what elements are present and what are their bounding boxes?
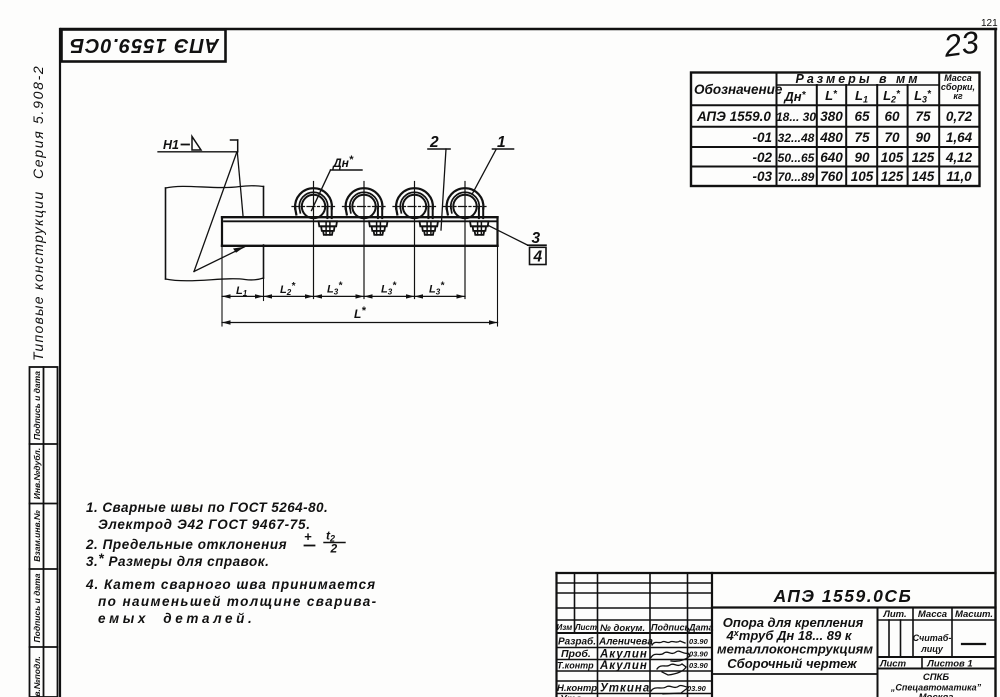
- svg-text:емых деталей.: емых деталей.: [98, 611, 255, 626]
- svg-text:145: 145: [912, 169, 935, 184]
- svg-text:Изм: Изм: [557, 623, 573, 632]
- svg-text:Лист: Лист: [574, 623, 597, 632]
- svg-text:640: 640: [820, 150, 843, 165]
- svg-text:125: 125: [912, 150, 935, 165]
- svg-text:1. Сварные швы по ГОСТ 5264: 1. Сварные швы по ГОСТ 5264-80.: [86, 500, 328, 515]
- svg-text:Листов 1: Листов 1: [926, 659, 972, 670]
- svg-text:Размеры в мм: Размеры в мм: [795, 72, 920, 86]
- svg-text:03.90: 03.90: [689, 650, 709, 659]
- svg-text:Разраб.: Разраб.: [558, 636, 596, 648]
- svg-text:Инв.№подл.: Инв.№подл.: [32, 656, 42, 697]
- svg-text:по наименьшей толщине свари: по наименьшей толщине сварива-: [98, 594, 378, 609]
- svg-text:L*: L*: [354, 305, 366, 321]
- svg-text:Н.контр: Н.контр: [557, 683, 597, 694]
- svg-text:4: 4: [533, 249, 543, 266]
- svg-text:03.90: 03.90: [689, 637, 709, 646]
- svg-text:Масса: Масса: [918, 609, 947, 620]
- svg-text:760: 760: [820, 169, 843, 184]
- svg-text:75: 75: [854, 130, 870, 145]
- svg-text:65: 65: [854, 109, 870, 124]
- svg-text:Лит.: Лит.: [882, 609, 906, 620]
- svg-text:90: 90: [854, 150, 870, 165]
- svg-text:АПЭ 1559.0СБ: АПЭ 1559.0СБ: [773, 586, 913, 606]
- svg-text:металлоконструкциям: металлоконструкциям: [717, 642, 873, 657]
- svg-text:Т.контр: Т.контр: [557, 661, 594, 671]
- svg-text:СПКБ: СПКБ: [923, 672, 950, 683]
- svg-text:60: 60: [884, 109, 900, 124]
- svg-text:Дата: Дата: [688, 623, 714, 633]
- svg-text:2: 2: [330, 542, 338, 556]
- svg-text:Обозначение: Обозначение: [694, 82, 783, 97]
- svg-text:Подпись: Подпись: [651, 623, 690, 633]
- svg-text:L2*: L2*: [280, 281, 296, 297]
- svg-text:50...65: 50...65: [778, 151, 815, 165]
- svg-text:+: +: [304, 529, 312, 544]
- svg-text:лицу: лицу: [920, 644, 944, 654]
- svg-text:АПЭ 1559.0: АПЭ 1559.0: [696, 109, 771, 124]
- svg-text:32...48: 32...48: [778, 131, 815, 145]
- svg-text:70...89: 70...89: [778, 170, 815, 184]
- svg-text:23: 23: [941, 24, 981, 64]
- svg-text:Серия 5.908-2: Серия 5.908-2: [30, 65, 46, 179]
- svg-text:-02: -02: [752, 150, 772, 165]
- svg-text:Лист: Лист: [879, 659, 907, 670]
- svg-text:Подпись и дата: Подпись и дата: [32, 371, 42, 440]
- svg-text:3.* Размеры для справок.: 3.* Размеры для справок.: [86, 550, 269, 569]
- svg-text:№ докум.: № докум.: [600, 623, 645, 634]
- svg-text:Взам.инв.№: Взам.инв.№: [32, 510, 42, 562]
- svg-text:Акулин: Акулин: [599, 649, 648, 661]
- svg-text:L2*: L2*: [883, 88, 901, 105]
- svg-text:90: 90: [915, 130, 931, 145]
- svg-text:L3*: L3*: [914, 88, 932, 105]
- svg-text:121: 121: [981, 18, 998, 29]
- svg-text:Масшт.: Масшт.: [955, 609, 993, 620]
- svg-text:Аленичева: Аленичева: [598, 637, 653, 648]
- svg-text:70: 70: [884, 130, 900, 145]
- svg-text:L3*: L3*: [381, 281, 397, 297]
- svg-text:L*: L*: [825, 88, 838, 103]
- svg-text:Считаб-: Считаб-: [913, 633, 952, 643]
- svg-text:480: 480: [819, 130, 843, 145]
- svg-text:Инв.№дубл.: Инв.№дубл.: [32, 448, 42, 499]
- svg-text:-03: -03: [752, 169, 772, 184]
- svg-text:L3*: L3*: [327, 281, 343, 297]
- svg-text:Сборочный чертеж: Сборочный чертеж: [727, 656, 858, 671]
- svg-text:0,72: 0,72: [946, 109, 973, 124]
- svg-text:L1: L1: [855, 88, 868, 105]
- svg-text:03.90: 03.90: [687, 684, 707, 693]
- svg-text:-01: -01: [752, 130, 772, 145]
- svg-text:Н1: Н1: [163, 138, 179, 152]
- svg-text:Дн*: Дн*: [332, 154, 354, 170]
- svg-text:11,0: 11,0: [946, 169, 972, 184]
- svg-text:Москва: Москва: [919, 692, 954, 697]
- svg-text:АПЭ 1559.0СБ: АПЭ 1559.0СБ: [69, 34, 220, 56]
- svg-text:1,64: 1,64: [946, 130, 973, 145]
- svg-text:L3*: L3*: [429, 281, 445, 297]
- svg-text:кг: кг: [953, 91, 963, 101]
- svg-text:Электрод Э42 ГОСТ 9467-75.: Электрод Э42 ГОСТ 9467-75.: [98, 517, 311, 532]
- svg-text:„Спецавтоматика”: „Спецавтоматика”: [890, 683, 982, 693]
- svg-text:2. Предельные отклонения: 2. Предельные отклонения: [85, 537, 287, 552]
- svg-text:18... 30: 18... 30: [776, 110, 816, 124]
- svg-text:125: 125: [881, 169, 904, 184]
- svg-text:4,12: 4,12: [945, 150, 973, 165]
- svg-text:L1: L1: [236, 285, 248, 298]
- svg-text:Проб.: Проб.: [561, 648, 591, 660]
- svg-text:Дн*: Дн*: [783, 89, 806, 104]
- svg-text:Акулин: Акулин: [599, 660, 648, 672]
- svg-text:105: 105: [851, 169, 874, 184]
- svg-text:75: 75: [915, 109, 931, 124]
- svg-text:4. Катет сварного шва прини: 4. Катет сварного шва принимается: [85, 577, 376, 592]
- svg-text:Уткина: Уткина: [600, 683, 650, 695]
- svg-text:Типовые конструкции: Типовые конструкции: [30, 191, 46, 361]
- svg-text:03.90: 03.90: [689, 661, 709, 670]
- svg-text:105: 105: [881, 150, 904, 165]
- svg-text:380: 380: [820, 109, 843, 124]
- svg-text:Подпись и дата: Подпись и дата: [32, 573, 42, 642]
